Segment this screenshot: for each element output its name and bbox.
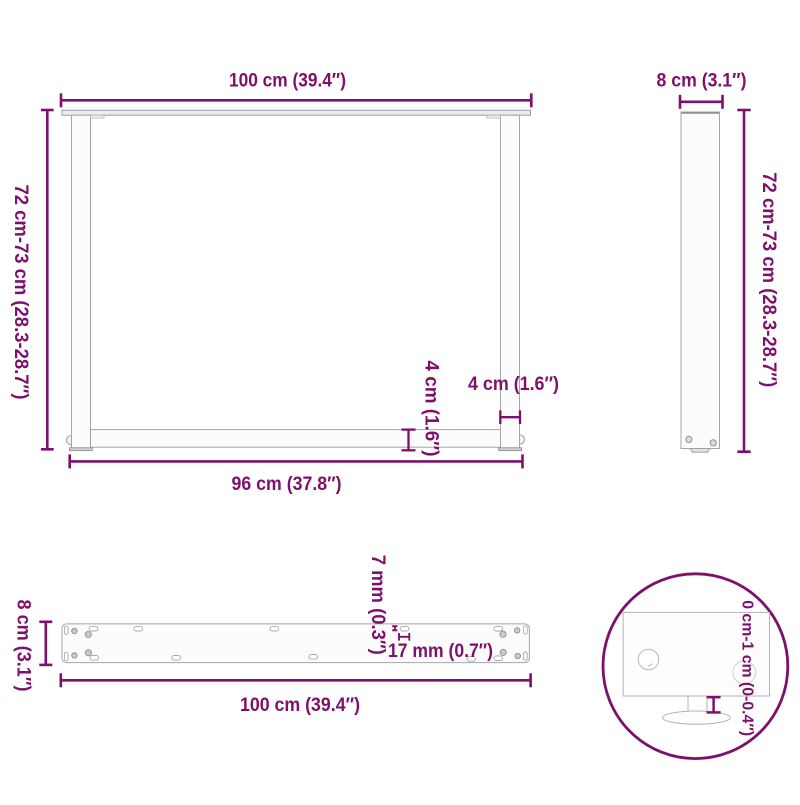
svg-text:0 cm-1 cm (0-0.4″): 0 cm-1 cm (0-0.4″)	[738, 600, 755, 736]
svg-text:72 cm-73 cm (28.3-28.7″): 72 cm-73 cm (28.3-28.7″)	[758, 172, 779, 387]
svg-text:100 cm (39.4″): 100 cm (39.4″)	[229, 71, 346, 92]
svg-text:17 mm (0.7″): 17 mm (0.7″)	[388, 641, 493, 662]
svg-text:72 cm-73 cm (28.3-28.7″): 72 cm-73 cm (28.3-28.7″)	[10, 185, 31, 400]
svg-text:96 cm (37.8″): 96 cm (37.8″)	[232, 474, 342, 495]
svg-text:8 cm (3.1″): 8 cm (3.1″)	[12, 600, 33, 692]
svg-text:8 cm (3.1″): 8 cm (3.1″)	[657, 70, 747, 91]
svg-text:4 cm (1.6″): 4 cm (1.6″)	[420, 361, 441, 457]
svg-text:100 cm (39.4″): 100 cm (39.4″)	[240, 695, 360, 716]
svg-text:4 cm (1.6″): 4 cm (1.6″)	[468, 374, 559, 395]
svg-text:7 mm (0.3″): 7 mm (0.3″)	[367, 555, 388, 655]
